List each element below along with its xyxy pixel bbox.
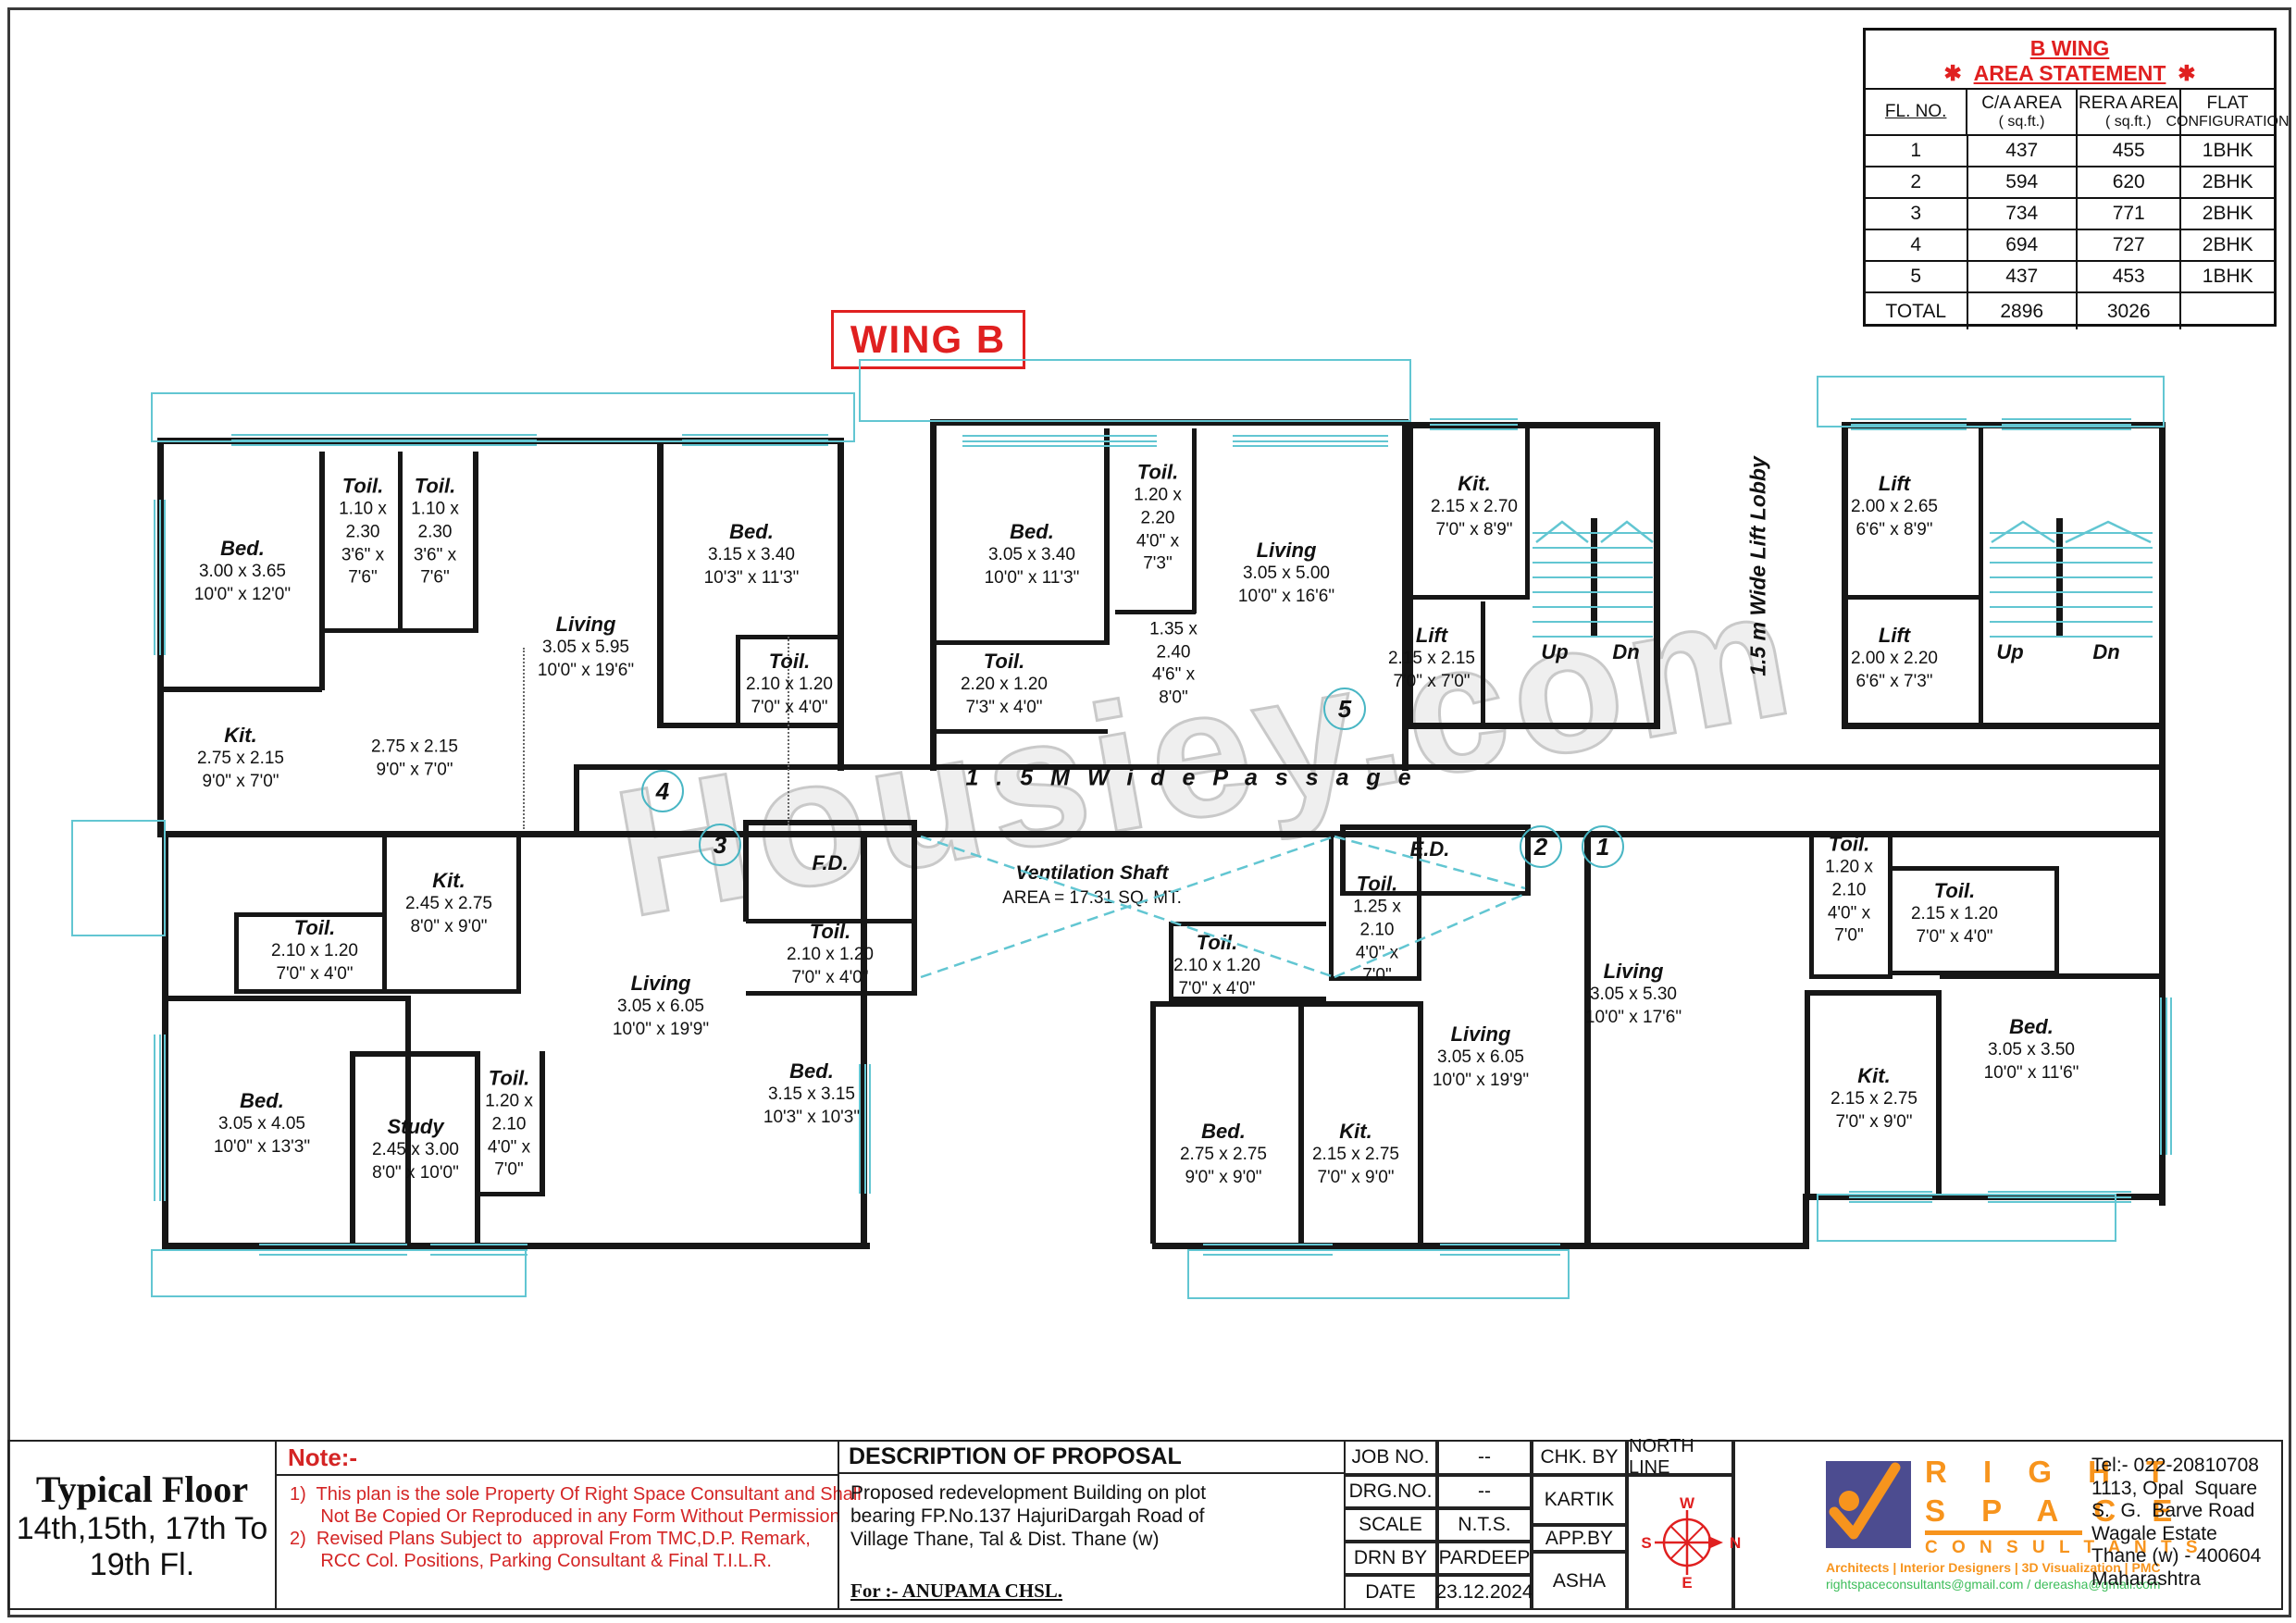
room-dimension: 2.45 x 2.75 bbox=[405, 894, 492, 917]
room-dimension: 2.15 x 2.75 bbox=[1312, 1145, 1399, 1168]
room-dimension: 3.05 x 6.05 bbox=[1433, 1047, 1529, 1071]
wall bbox=[1805, 990, 1810, 1199]
room-dimension: 2.75 x 2.15 bbox=[197, 749, 284, 772]
room-name: Up bbox=[1541, 640, 1568, 664]
room-dimension: 2.30 bbox=[339, 522, 387, 545]
room-dimension: 1.20 x bbox=[1825, 857, 1873, 880]
area-table-cell: 1BHK bbox=[2181, 262, 2274, 291]
area-table-cell: 2BHK bbox=[2181, 167, 2274, 197]
room-name: Lift bbox=[1388, 624, 1475, 648]
area-table-cell: 734 bbox=[1968, 199, 2078, 229]
staircase bbox=[1990, 519, 2153, 638]
room-dimension: 2.45 x 3.00 bbox=[372, 1140, 459, 1163]
room-name: Bed. bbox=[214, 1089, 310, 1113]
area-table-header: FLATCONFIGURATION bbox=[2181, 90, 2274, 134]
room-label: Toil.2.10 x 1.207'0" x 4'0" bbox=[787, 920, 874, 990]
room-name: Bed. bbox=[1984, 1015, 2079, 1039]
app-by-label-cell: APP.BY bbox=[1532, 1525, 1627, 1552]
logo-underline bbox=[1925, 1530, 2082, 1535]
room-dimension: 3.05 x 5.95 bbox=[538, 638, 634, 661]
room-dimension: 8'0" bbox=[1149, 688, 1198, 711]
room-dimension: 7'0" x 4'0" bbox=[746, 697, 833, 720]
room-label: Study2.45 x 3.008'0" x 10'0" bbox=[372, 1115, 459, 1185]
drawing-sheet: { "wing_label": "WING B", "area_table": … bbox=[0, 0, 2296, 1623]
unit-number-marker: 3 bbox=[699, 824, 741, 866]
room-label: F.D. bbox=[812, 851, 848, 875]
room-label: Kit.2.15 x 2.757'0" x 9'0" bbox=[1312, 1120, 1399, 1190]
room-dimension: 7'0" x 9'0" bbox=[1312, 1167, 1399, 1190]
wall bbox=[1169, 922, 1326, 926]
room-label: Lift2.00 x 2.206'6" x 7'3" bbox=[1851, 624, 1938, 694]
wall bbox=[838, 438, 844, 771]
wall bbox=[1809, 974, 1893, 979]
room-name: Living bbox=[1433, 1022, 1529, 1047]
wall bbox=[1481, 601, 1485, 723]
room-dimension: 10'0" x 19'9" bbox=[1433, 1070, 1529, 1093]
wall bbox=[1329, 837, 1334, 981]
room-dimension: 7'0" x 7'0" bbox=[1388, 671, 1475, 694]
room-dimension: 4'6" x bbox=[1149, 664, 1198, 688]
room-name: Bed. bbox=[194, 537, 291, 561]
room-dimension: 10'3" x 10'3" bbox=[763, 1107, 860, 1130]
room-dimension: 2.20 x 1.20 bbox=[961, 675, 1048, 698]
title-block-note-cell: Note:- 1) This plan is the sole Property… bbox=[275, 1440, 839, 1610]
balcony-outline bbox=[859, 359, 1411, 422]
area-table-header: FL. NO. bbox=[1866, 90, 1967, 134]
room-label: Bed.2.75 x 2.759'0" x 9'0" bbox=[1180, 1120, 1267, 1190]
room-dimension: 2.10 x 1.20 bbox=[271, 941, 358, 964]
room-dimension: 2.30 bbox=[411, 522, 459, 545]
room-label: Dn bbox=[1612, 640, 1639, 664]
unit-number-marker: 2 bbox=[1520, 825, 1562, 868]
room-dimension: 2.10 x 1.20 bbox=[787, 945, 874, 968]
job-table-label: JOB NO. bbox=[1344, 1440, 1437, 1475]
job-table-value: N.T.S. bbox=[1437, 1508, 1532, 1542]
description-heading: DESCRIPTION OF PROPOSAL bbox=[839, 1442, 1344, 1474]
area-table-cell: 4 bbox=[1866, 230, 1968, 260]
window-line bbox=[1233, 435, 1388, 447]
room-label: E.D. bbox=[1410, 837, 1450, 861]
job-table-label: DRN BY bbox=[1344, 1542, 1437, 1575]
room-dimension: 9'0" x 7'0" bbox=[371, 759, 458, 782]
room-name: Toil. bbox=[1825, 832, 1873, 856]
area-table-total-cell: 2896 bbox=[1968, 293, 2078, 329]
room-dimension: 2.10 bbox=[1825, 880, 1873, 903]
room-label: Toil.2.10 x 1.207'0" x 4'0" bbox=[271, 916, 358, 986]
wall bbox=[1418, 1001, 1423, 1244]
room-dimension: 3.05 x 3.40 bbox=[985, 545, 1080, 568]
room-name: Toil. bbox=[339, 474, 387, 498]
wall bbox=[1893, 866, 2059, 871]
room-name: Kit. bbox=[1431, 472, 1518, 496]
room-dimension: 10'0" x 19'9" bbox=[613, 1019, 709, 1042]
room-dimension: 3.05 x 6.05 bbox=[613, 997, 709, 1020]
room-label: Bed.3.15 x 3.4010'3" x 11'3" bbox=[704, 520, 800, 590]
area-table-total-cell: 3026 bbox=[2078, 293, 2181, 329]
wall bbox=[1150, 1001, 1156, 1244]
area-table-cell: 2BHK bbox=[2181, 199, 2274, 229]
room-dimension: 3.05 x 5.30 bbox=[1585, 985, 1682, 1008]
unit-number-marker: 1 bbox=[1582, 825, 1624, 868]
north-line-label-cell: NORTH LINE bbox=[1627, 1440, 1733, 1475]
wall bbox=[479, 1192, 545, 1196]
ventilation-shaft-label: Ventilation Shaft bbox=[1016, 862, 1169, 885]
floor-range-line2: 19th Fl. bbox=[90, 1547, 194, 1583]
wall bbox=[165, 996, 408, 1001]
passage-label: 1 . 5 M W i d e P a s s a g e bbox=[965, 765, 1412, 792]
wall bbox=[163, 687, 322, 692]
staircase bbox=[1533, 519, 1653, 638]
job-table-label: SCALE bbox=[1344, 1508, 1437, 1542]
room-label: Living3.05 x 6.0510'0" x 19'9" bbox=[1433, 1022, 1529, 1093]
wall bbox=[1842, 422, 1848, 729]
description-for-line: For :- ANUPAMA CHSL. bbox=[850, 1580, 1062, 1603]
room-dimension: 2.00 x 2.65 bbox=[1851, 497, 1938, 520]
wall bbox=[1803, 1194, 1809, 1249]
room-label: Toil.1.20 x2.104'0" x7'0" bbox=[1825, 832, 1873, 948]
room-dimension: 4'0" x bbox=[1353, 942, 1401, 965]
room-dimension: 1.10 x bbox=[339, 499, 387, 522]
title-block-description-cell: DESCRIPTION OF PROPOSAL Proposed redevel… bbox=[838, 1440, 1346, 1610]
room-dimension: 1.10 x bbox=[411, 499, 459, 522]
wall bbox=[736, 635, 740, 727]
room-dimension: 2.15 x 2.70 bbox=[1431, 497, 1518, 520]
room-label: 2.75 x 2.159'0" x 7'0" bbox=[371, 736, 458, 781]
area-table-row: 25946202BHK bbox=[1866, 167, 2274, 199]
balcony-outline bbox=[1187, 1249, 1570, 1299]
area-table-cell: 620 bbox=[2078, 167, 2181, 197]
room-label: Toil.1.10 x2.303'6" x7'6" bbox=[411, 474, 459, 589]
room-dimension: 10'0" x 16'6" bbox=[1238, 586, 1334, 609]
wall bbox=[473, 452, 478, 633]
room-dimension: 10'0" x 17'6" bbox=[1585, 1007, 1682, 1030]
wall bbox=[540, 1051, 545, 1196]
room-dimension: 7'0" bbox=[485, 1159, 533, 1183]
room-dimension: 10'0" x 19'6" bbox=[538, 660, 634, 683]
consultant-logo-cell: R I G H T S P A C E C O N S U L T A N T … bbox=[1733, 1440, 2283, 1610]
room-label: Toil.1.20 x2.204'0" x7'3" bbox=[1134, 460, 1182, 576]
wall bbox=[1115, 610, 1196, 614]
job-table-value: PARDEEP bbox=[1437, 1542, 1532, 1575]
wall bbox=[1407, 723, 1660, 729]
window-line bbox=[154, 1035, 166, 1201]
unit-number-marker: 5 bbox=[1323, 688, 1366, 730]
wall bbox=[324, 628, 478, 633]
job-table-label: DATE bbox=[1344, 1575, 1437, 1610]
wall bbox=[574, 764, 579, 837]
wall bbox=[350, 1051, 480, 1057]
area-table-cell: 1BHK bbox=[2181, 136, 2274, 166]
room-dimension: 2.40 bbox=[1149, 641, 1198, 664]
room-label: Toil.2.20 x 1.207'3" x 4'0" bbox=[961, 650, 1048, 720]
room-label: Dn bbox=[2092, 640, 2119, 664]
room-dimension: 3'6" x bbox=[339, 544, 387, 567]
wall bbox=[382, 989, 521, 994]
room-dimension: 2.75 x 2.75 bbox=[1180, 1145, 1267, 1168]
room-name: Bed. bbox=[985, 520, 1080, 544]
room-name: Toil. bbox=[1911, 879, 1998, 903]
room-label: Lift2.00 x 2.656'6" x 8'9" bbox=[1851, 472, 1938, 542]
room-dimension: 2.15 x 2.15 bbox=[1388, 649, 1475, 672]
area-table-wing-title: B WING bbox=[1866, 36, 2274, 61]
wall bbox=[1584, 837, 1591, 1249]
balcony-outline bbox=[71, 820, 166, 936]
room-name: Lift bbox=[1851, 624, 1938, 648]
room-dimension: 3.05 x 3.50 bbox=[1984, 1040, 2079, 1063]
room-dimension: 3.00 x 3.65 bbox=[194, 562, 291, 585]
balcony-outline bbox=[151, 1249, 527, 1297]
wall bbox=[1525, 428, 1530, 600]
wall bbox=[234, 912, 239, 994]
room-dimension: 2.75 x 2.15 bbox=[371, 736, 458, 759]
wall bbox=[475, 1051, 480, 1247]
area-table-total-cell bbox=[2181, 293, 2274, 329]
room-dimension: 7'0" x 4'0" bbox=[787, 967, 874, 990]
room-dimension: 3.15 x 3.15 bbox=[763, 1084, 860, 1108]
wall bbox=[1192, 428, 1197, 613]
wall bbox=[657, 723, 842, 728]
room-dimension: 3.05 x 5.00 bbox=[1238, 564, 1334, 587]
room-name: Study bbox=[372, 1115, 459, 1139]
room-label: Toil.1.10 x2.303'6" x7'6" bbox=[339, 474, 387, 589]
wall bbox=[1888, 836, 1893, 979]
app-by-value-cell: ASHA bbox=[1532, 1552, 1627, 1610]
wall bbox=[1654, 422, 1660, 729]
area-table-cell: 455 bbox=[2078, 136, 2181, 166]
room-dimension: 7'3" x 4'0" bbox=[961, 697, 1048, 720]
area-table-head-row: FL. NO.C/A AREA( sq.ft.)RERA AREA( sq.ft… bbox=[1866, 90, 2274, 136]
room-label: Toil.1.25 x2.104'0" x7'0" bbox=[1353, 872, 1401, 987]
wall bbox=[350, 1051, 355, 1247]
room-dimension: 2.00 x 2.20 bbox=[1851, 649, 1938, 672]
room-dimension: 1.25 x bbox=[1353, 897, 1401, 920]
wall bbox=[657, 438, 664, 728]
room-dimension: 10'0" x 11'3" bbox=[985, 567, 1080, 590]
room-name: Living bbox=[1238, 539, 1334, 563]
wall bbox=[1298, 1001, 1304, 1244]
room-name: Bed. bbox=[1180, 1120, 1267, 1144]
room-name: Living bbox=[1585, 960, 1682, 984]
area-table-cell: 694 bbox=[1968, 230, 2078, 260]
room-dimension: 3.05 x 4.05 bbox=[214, 1114, 310, 1137]
area-table-cell: 594 bbox=[1968, 167, 2078, 197]
window-line bbox=[1430, 418, 1518, 430]
room-dimension: 2.20 bbox=[1134, 508, 1182, 531]
room-label: Toil.2.10 x 1.207'0" x 4'0" bbox=[1173, 931, 1260, 1001]
wall bbox=[746, 991, 912, 996]
wall bbox=[319, 452, 325, 690]
wall bbox=[1340, 824, 1346, 896]
room-label: Kit.2.15 x 2.757'0" x 9'0" bbox=[1831, 1064, 1917, 1134]
room-name: Living bbox=[538, 613, 634, 637]
room-label: Bed.3.05 x 3.5010'0" x 11'6" bbox=[1984, 1015, 2079, 1085]
room-label: Living3.05 x 5.3010'0" x 17'6" bbox=[1585, 960, 1682, 1030]
area-statement-table: B WING ✱ AREA STATEMENT ✱ FL. NO.C/A ARE… bbox=[1863, 28, 2277, 327]
room-dimension: 7'0" bbox=[1825, 925, 1873, 948]
note-line: 1) This plan is the sole Property Of Rig… bbox=[277, 1483, 838, 1505]
room-label: Toil.2.10 x 1.207'0" x 4'0" bbox=[746, 650, 833, 720]
room-name: Bed. bbox=[704, 520, 800, 544]
room-dimension: 7'0" x 4'0" bbox=[1911, 926, 1998, 949]
room-label: Kit.2.75 x 2.159'0" x 7'0" bbox=[197, 724, 284, 794]
room-name: E.D. bbox=[1410, 837, 1450, 861]
room-dimension: 7'0" x 8'9" bbox=[1431, 519, 1518, 542]
wall bbox=[2054, 866, 2059, 975]
area-table-row: 46947272BHK bbox=[1866, 230, 2274, 262]
wall bbox=[1805, 990, 1942, 996]
area-table-row: 37347712BHK bbox=[1866, 199, 2274, 230]
description-line: bearing FP.No.137 HajuriDargah Road of bbox=[839, 1505, 1344, 1528]
room-name: Toil. bbox=[746, 650, 833, 674]
wall bbox=[930, 419, 937, 771]
room-dimension: 6'6" x 8'9" bbox=[1851, 519, 1938, 542]
room-name: Up bbox=[1996, 640, 2023, 664]
room-dimension: 2.10 x 1.20 bbox=[746, 675, 833, 698]
room-dimension: 1.20 x bbox=[485, 1091, 533, 1114]
window-line bbox=[154, 500, 166, 655]
room-name: Kit. bbox=[1312, 1120, 1399, 1144]
wall bbox=[1936, 990, 1942, 1199]
wall bbox=[1809, 836, 1814, 979]
room-dimension: 4'0" x bbox=[485, 1136, 533, 1159]
contact-address: Tel:- 022-20810708 1113, Opal Square S. … bbox=[2091, 1455, 2261, 1591]
room-dimension: 9'0" x 7'0" bbox=[197, 771, 284, 794]
room-dimension: 7'0" x 4'0" bbox=[271, 963, 358, 986]
room-dimension: 10'0" x 13'3" bbox=[214, 1136, 310, 1159]
room-dimension: 8'0" x 9'0" bbox=[405, 916, 492, 939]
wall bbox=[1940, 973, 2164, 979]
area-table-cell: 2BHK bbox=[2181, 230, 2274, 260]
area-table-total-row: TOTAL28963026 bbox=[1866, 293, 2274, 329]
note-line: 2) Revised Plans Subject to approval Fro… bbox=[277, 1528, 838, 1550]
room-label: Bed.3.05 x 4.0510'0" x 13'3" bbox=[214, 1089, 310, 1159]
north-line-compass-cell bbox=[1627, 1475, 1733, 1610]
wall bbox=[935, 729, 1108, 734]
room-label: Toil.1.20 x2.104'0" x7'0" bbox=[485, 1066, 533, 1182]
room-dimension: 9'0" x 9'0" bbox=[1180, 1167, 1267, 1190]
chk-by-label-cell: CHK. BY bbox=[1532, 1440, 1627, 1475]
room-dimension: 2.15 x 1.20 bbox=[1911, 904, 1998, 927]
room-dimension: 2.10 bbox=[485, 1114, 533, 1137]
room-name: Toil. bbox=[961, 650, 1048, 674]
window-line bbox=[859, 1064, 871, 1194]
room-label: Up bbox=[1541, 640, 1568, 664]
logo-mark bbox=[1826, 1461, 1911, 1548]
room-label: Living3.05 x 6.0510'0" x 19'9" bbox=[613, 972, 709, 1042]
room-dimension: 1.35 x bbox=[1149, 619, 1198, 642]
dotted-line bbox=[523, 648, 525, 829]
room-name: Toil. bbox=[485, 1066, 533, 1090]
floor-title: Typical Floor bbox=[36, 1468, 248, 1511]
title-block-floor-cell: Typical Floor 14th,15th, 17th To 19th Fl… bbox=[7, 1440, 277, 1610]
room-name: Dn bbox=[1612, 640, 1639, 664]
wall bbox=[1150, 1001, 1423, 1007]
room-dimension: 7'0" x 9'0" bbox=[1831, 1111, 1917, 1134]
area-table-subtitle: ✱ AREA STATEMENT ✱ bbox=[1866, 61, 2274, 86]
note-heading: Note:- bbox=[277, 1442, 838, 1476]
room-dimension: 2.10 x 1.20 bbox=[1173, 956, 1260, 979]
room-dimension: 7'6" bbox=[411, 567, 459, 590]
room-dimension: 8'0" x 10'0" bbox=[372, 1162, 459, 1185]
area-table-cell: 437 bbox=[1968, 262, 2078, 291]
description-line: Village Thane, Tal & Dist. Thane (w) bbox=[839, 1528, 1344, 1551]
wall bbox=[516, 837, 521, 994]
area-table-header: C/A AREA( sq.ft.) bbox=[1967, 90, 2077, 134]
room-label: Kit.2.45 x 2.758'0" x 9'0" bbox=[405, 869, 492, 939]
lift-lobby-label: 1.5 m Wide Lift Lobby bbox=[1746, 456, 1771, 675]
room-label: Bed.3.15 x 3.1510'3" x 10'3" bbox=[763, 1059, 860, 1130]
wall bbox=[1848, 595, 1979, 600]
room-dimension: 2.10 bbox=[1353, 920, 1401, 943]
room-name: Toil. bbox=[787, 920, 874, 944]
unit-number-marker: 4 bbox=[641, 770, 684, 812]
room-label: Kit.2.15 x 2.707'0" x 8'9" bbox=[1431, 472, 1518, 542]
note-body: 1) This plan is the sole Property Of Rig… bbox=[277, 1476, 838, 1572]
job-table-value: 23.12.2024 bbox=[1437, 1575, 1532, 1610]
room-dimension: 4'0" x bbox=[1825, 902, 1873, 925]
balcony-outline bbox=[151, 392, 855, 442]
room-dimension: 7'0" x 4'0" bbox=[1173, 978, 1260, 1001]
area-table-cell: 2 bbox=[1866, 167, 1968, 197]
room-dimension: 4'0" x bbox=[1134, 530, 1182, 553]
room-name: Toil. bbox=[271, 916, 358, 940]
job-table-label: DRG.NO. bbox=[1344, 1475, 1437, 1508]
area-table-cell: 453 bbox=[2078, 262, 2181, 291]
room-name: Kit. bbox=[197, 724, 284, 748]
chk-by-value-cell: KARTIK bbox=[1532, 1475, 1627, 1525]
window-line bbox=[962, 435, 1157, 447]
room-name: Lift bbox=[1851, 472, 1938, 496]
area-table-cell: 5 bbox=[1866, 262, 1968, 291]
room-name: Toil. bbox=[1134, 460, 1182, 484]
floor-range-line: 14th,15th, 17th To bbox=[17, 1511, 268, 1547]
wall bbox=[935, 640, 1108, 645]
area-table-cell: 3 bbox=[1866, 199, 1968, 229]
room-label: 1.35 x2.404'6" x8'0" bbox=[1149, 619, 1198, 711]
room-name: Dn bbox=[2092, 640, 2119, 664]
room-dimension: 3.15 x 3.40 bbox=[704, 545, 800, 568]
room-label: Bed.3.05 x 3.4010'0" x 11'3" bbox=[985, 520, 1080, 590]
wall bbox=[1979, 428, 1983, 723]
area-table-row: 54374531BHK bbox=[1866, 262, 2274, 293]
wall bbox=[1104, 428, 1110, 645]
ventilation-shaft-area: AREA = 17.31 SQ. MT. bbox=[1002, 888, 1182, 909]
balcony-outline bbox=[1817, 376, 2165, 427]
area-table-cell: 437 bbox=[1968, 136, 2078, 166]
area-table-body: 14374551BHK25946202BHK37347712BHK4694727… bbox=[1866, 136, 2274, 293]
room-name: Toil. bbox=[411, 474, 459, 498]
room-dimension: 1.20 x bbox=[1134, 485, 1182, 508]
room-name: Bed. bbox=[763, 1059, 860, 1084]
room-name: Toil. bbox=[1173, 931, 1260, 955]
room-dimension: 10'0" x 12'0" bbox=[194, 584, 291, 607]
area-table-row: 14374551BHK bbox=[1866, 136, 2274, 167]
room-label: Living3.05 x 5.9510'0" x 19'6" bbox=[538, 613, 634, 683]
note-line: RCC Col. Positions, Parking Consultant &… bbox=[277, 1550, 838, 1572]
wall bbox=[743, 820, 917, 825]
room-label: Living3.05 x 5.0010'0" x 16'6" bbox=[1238, 539, 1334, 609]
description-body: Proposed redevelopment Building on plotb… bbox=[839, 1474, 1344, 1551]
area-table-cell: 727 bbox=[2078, 230, 2181, 260]
job-table-value: -- bbox=[1437, 1440, 1532, 1475]
room-label: Bed.3.00 x 3.6510'0" x 12'0" bbox=[194, 537, 291, 607]
room-dimension: 3'6" x bbox=[411, 544, 459, 567]
area-table-cell: 771 bbox=[2078, 199, 2181, 229]
room-label: Lift2.15 x 2.157'0" x 7'0" bbox=[1388, 624, 1475, 694]
room-dimension: 2.15 x 2.75 bbox=[1831, 1089, 1917, 1112]
wall bbox=[382, 837, 387, 994]
room-dimension: 7'3" bbox=[1134, 553, 1182, 576]
